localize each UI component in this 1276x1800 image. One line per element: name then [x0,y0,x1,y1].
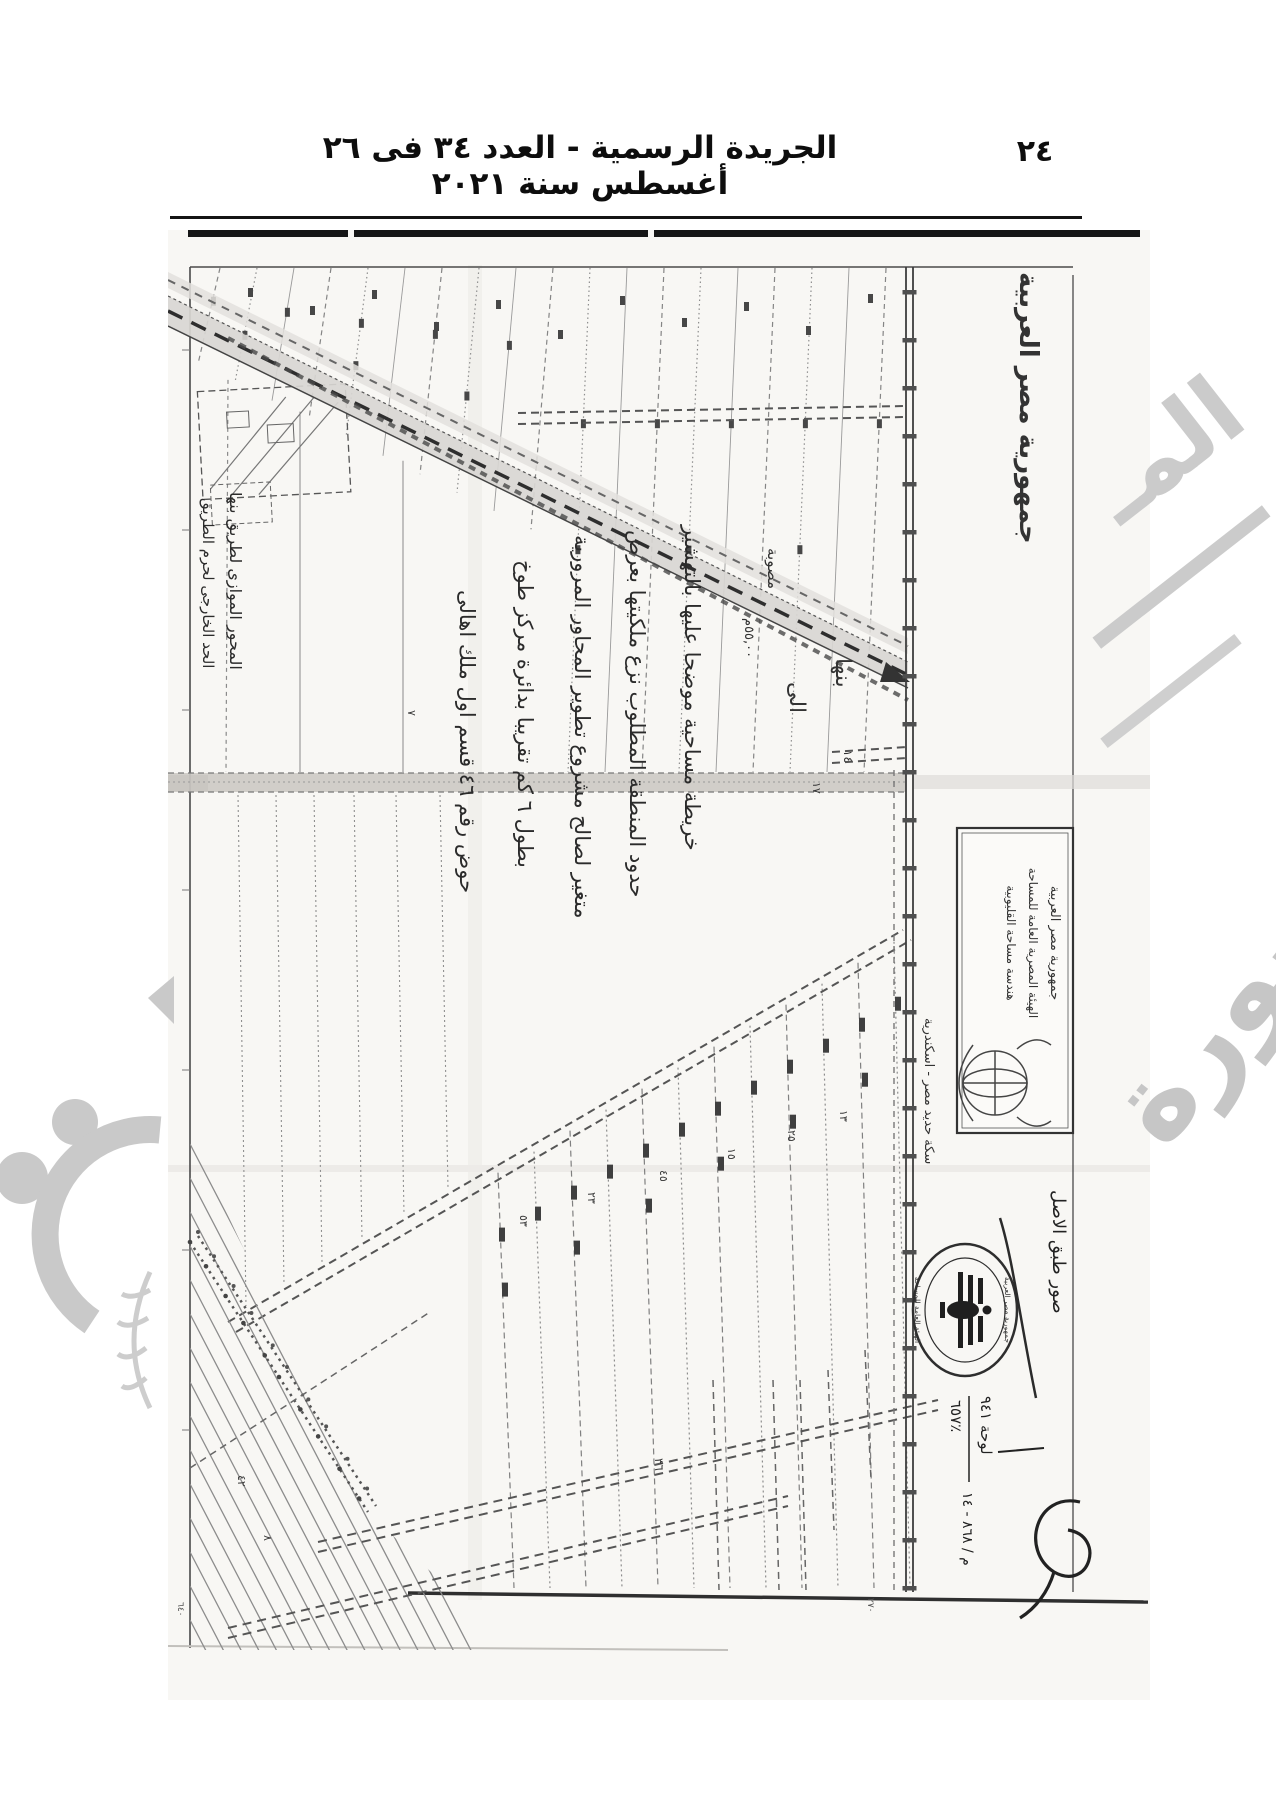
watermark-laurel-icon [118,1272,150,1408]
watermark-dot-icon [52,1099,98,1145]
mid-boundary-lines [226,380,906,772]
annotation-line-3: متغير لصالح مشروع تطوير المحاور المرورية [570,535,594,919]
parcel-number: ٧ [405,710,418,716]
diagonal-road [168,272,910,700]
file-ref: م / ٨٦٨ - ١٤ [959,1492,975,1566]
survey-stamp: جمهورية مصر العربية الهيئة المصرية العام… [957,828,1073,1133]
railway [894,267,917,1592]
survey-stamp-line-1: جمهورية مصر العربية [1047,886,1062,1000]
annotation-line-4: بطول ٦ كم تقريبا بدائرة مركز طوخ [512,560,537,868]
eagle-icon [940,1272,992,1348]
surveyed-label: مصوبة [764,548,782,589]
gazette-page: الجريدة الرسمية - العدد ٣٤ فى ٢٦ أغسطس س… [0,0,1276,1800]
bottom-border-dark [408,1593,1148,1602]
parcel-numbers: ٥٣ ٢٣ ٤٥ ١٥ ٢٥ ١٣ ٨ ٤٢ ٣٦ ٧ [235,710,850,1541]
handwritten-notes: صور طبق الاصل لوحة ٩٤١ ٦٥٧٪ م / ٨٦٨ - ١٤ [947,1190,1090,1618]
header-rule [170,216,1082,219]
handwritten-dash [998,1448,1044,1452]
corner-value-bl: ٦٤٠ [175,1602,185,1617]
page-number: ٢٤ [995,134,1075,169]
km-label-14: ١٤ [841,750,855,763]
sheet-ref: لوحة ٩٤١ [977,1396,995,1455]
bottom-border-faint [168,1646,728,1650]
misc-boundaries [182,350,938,1638]
survey-stamp-line-2: الهيئة المصرية العامة للمساحة [1025,868,1040,1018]
watermark-dot-icon [0,1152,48,1204]
map-scan: خريطة مساحية موضحا عليها بالتهشير حدود ا… [168,230,1150,1700]
hatched-area [190,1110,475,1658]
seal-top-text: جمهورية مصر العربية [1003,1277,1012,1343]
parcel-number: ٥٣ [517,1215,530,1227]
to-banha-label-1: الى [784,682,809,713]
parcel-number: ٣٦ [652,1458,666,1471]
canal [168,773,1150,792]
scan-top-edge [188,230,1140,237]
survey-stamp-line-3: هندسة مساحة القليوبية [1003,885,1018,1000]
parcel-number: ٢٥ [785,1130,798,1142]
cadastral-map: خريطة مساحية موضحا عليها بالتهشير حدود ا… [168,230,1150,1700]
km-label-17: ١٧ [810,782,823,794]
official-seal: جمهورية مصر العربية الهيئة العامة للمساح… [913,1218,1036,1398]
watermark-arc-icon [45,1130,160,1322]
watermark-emblem-left [0,950,175,1420]
railway-label: سكة حديد مصر - اسكندرية [921,1018,936,1164]
annotation-line-2: حدود المنطقة المطلوب نزع ملكيتها بعرض [625,530,649,897]
parcel-number: ٢٣ [585,1192,598,1204]
corner-value-br: ٢٧٠ [865,1598,875,1613]
annotation-line-1: خريطة مساحية موضحا عليها بالتهشير [680,524,704,851]
parcel-number: ٨ [261,1535,274,1541]
copy-note: صور طبق الاصل [1048,1190,1069,1314]
parcel-number: ١٥ [725,1148,738,1160]
scale-ref: ٦٥٧٪ [947,1400,965,1432]
parcel-number: ٤٢ [235,1475,248,1487]
parcel-number: ١٣ [837,1110,850,1122]
lower-parcel-strips [228,795,911,1590]
annotation-left-line-2: الحد الخارجى لحرم الطريق [199,498,217,668]
dotted-drain-road [188,1230,376,1512]
gazette-header-title: الجريدة الرسمية - العدد ٣٤ فى ٢٦ أغسطس س… [250,130,910,202]
corner-values: ٦٤٠ ٢٧٠ [175,1598,875,1617]
to-banha-label-2: بنها [830,658,855,688]
annotation-block: خريطة مساحية موضحا عليها بالتهشير حدود ا… [199,492,704,919]
annotation-line-5: حوض رقم ٤٦ قسم اول ملك اهالى [454,590,479,893]
country-label: جمهورية مصر العربية [1013,272,1043,544]
annotation-left-line-1: المحور الموازى لطريق بنها [225,492,245,670]
seal-bottom-text: الهيئة العامة للمساحة [913,1277,922,1343]
road-width-label: ٥٥,٠٠م [741,618,756,658]
parcel-number: ٤٥ [657,1170,670,1182]
